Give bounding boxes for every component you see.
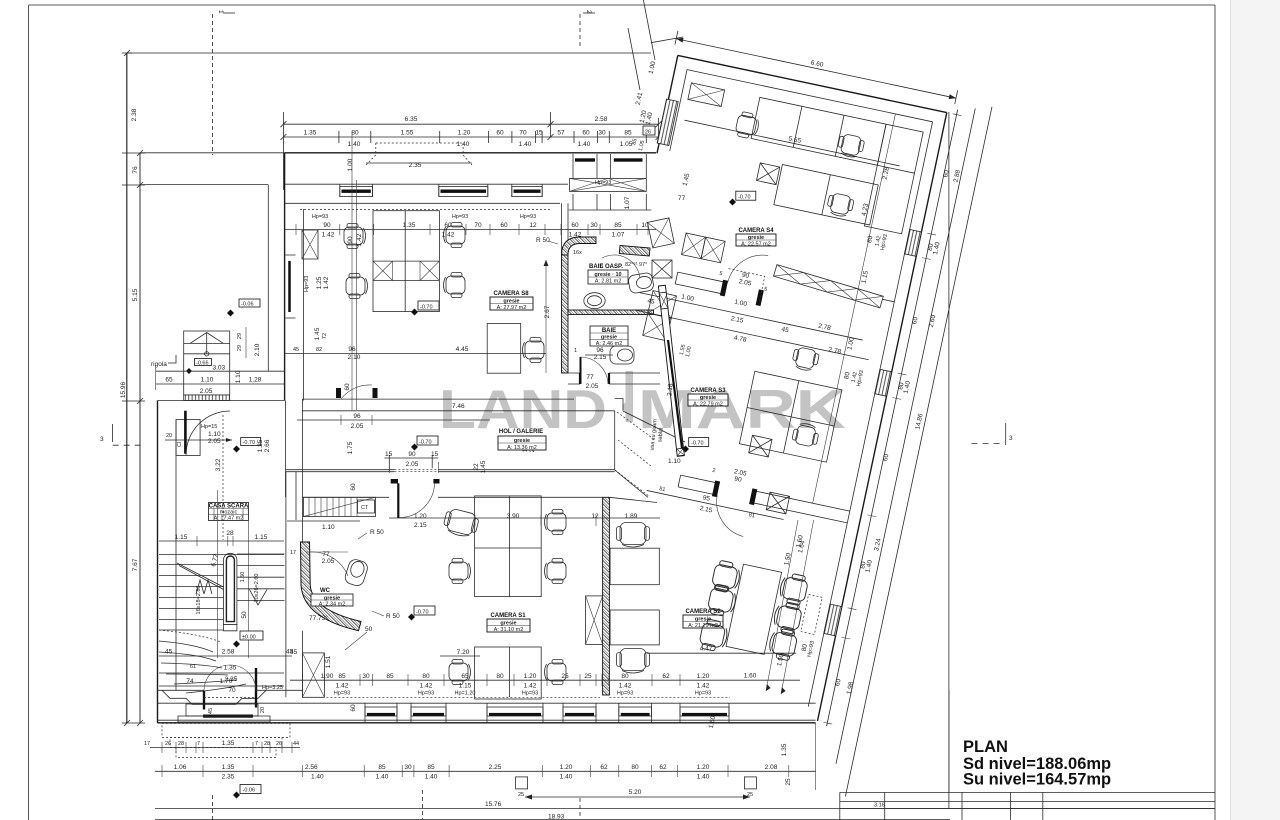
svg-text:Hp=93: Hp=93 <box>695 691 711 697</box>
svg-text:gresie: gresie <box>500 621 516 627</box>
svg-text:77: 77 <box>322 551 330 558</box>
svg-text:1.42: 1.42 <box>356 233 363 246</box>
svg-text:1.07: 1.07 <box>624 196 631 209</box>
svg-text:A: 22.79 m2: A: 22.79 m2 <box>693 401 723 407</box>
svg-text:45: 45 <box>208 708 214 714</box>
svg-text:96: 96 <box>353 413 361 420</box>
svg-text:3.16: 3.16 <box>874 803 885 809</box>
svg-text:1.51: 1.51 <box>325 655 332 668</box>
svg-text:22: 22 <box>473 463 480 471</box>
svg-text:Hp=93: Hp=93 <box>334 691 350 697</box>
svg-text:Hp=1.20: Hp=1.20 <box>455 691 476 697</box>
svg-text:1.10: 1.10 <box>201 377 214 384</box>
svg-text:85: 85 <box>427 764 435 771</box>
svg-text:3: 3 <box>1009 435 1013 442</box>
svg-text:1.35: 1.35 <box>304 130 317 137</box>
svg-text:-0.06: -0.06 <box>243 788 256 794</box>
svg-text:10x26=2.60: 10x26=2.60 <box>254 574 260 603</box>
svg-text:1.06: 1.06 <box>174 764 187 771</box>
svg-text:R 50: R 50 <box>536 237 550 244</box>
svg-text:25: 25 <box>785 778 792 786</box>
svg-text:A: 2.34 m2: A: 2.34 m2 <box>319 601 346 607</box>
svg-text:1.45: 1.45 <box>480 460 487 473</box>
svg-text:2.35: 2.35 <box>222 774 235 781</box>
svg-text:1.20: 1.20 <box>560 764 573 771</box>
svg-text:70: 70 <box>228 687 236 694</box>
svg-text:1.89: 1.89 <box>625 513 638 520</box>
svg-text:BAIE: BAIE <box>602 328 616 334</box>
svg-text:2.18: 2.18 <box>666 383 674 397</box>
svg-text:1.40: 1.40 <box>519 141 532 148</box>
svg-text:Su nivel=164.57mp: Su nivel=164.57mp <box>963 771 1111 789</box>
svg-text:20: 20 <box>260 707 266 713</box>
svg-text:2.10: 2.10 <box>348 354 361 361</box>
svg-text:26: 26 <box>276 741 282 747</box>
svg-text:2.10: 2.10 <box>254 343 261 356</box>
svg-text:-0.70: -0.70 <box>419 440 432 446</box>
svg-text:1.10: 1.10 <box>235 370 242 383</box>
svg-text:-0.70: -0.70 <box>416 610 429 616</box>
svg-text:CT: CT <box>361 505 369 511</box>
svg-text:90: 90 <box>323 222 331 229</box>
svg-text:Hp=93: Hp=93 <box>452 214 468 220</box>
svg-text:A: 31.10 m2: A: 31.10 m2 <box>494 627 524 633</box>
svg-text:1.25: 1.25 <box>257 439 264 452</box>
svg-text:25: 25 <box>584 673 592 680</box>
svg-text:30: 30 <box>598 130 606 137</box>
svg-text:1.15: 1.15 <box>459 683 472 690</box>
svg-text:57: 57 <box>557 130 565 137</box>
svg-text:±0.00: ±0.00 <box>242 635 256 641</box>
svg-text:45: 45 <box>165 649 173 656</box>
svg-text:85: 85 <box>631 138 638 145</box>
svg-text:BAIE OASP.: BAIE OASP. <box>589 264 623 270</box>
svg-text:1.40: 1.40 <box>560 774 573 781</box>
svg-text:76: 76 <box>132 166 139 174</box>
svg-text:17: 17 <box>144 741 150 747</box>
svg-text:rigola: rigola <box>151 361 167 368</box>
svg-text:60: 60 <box>500 222 508 229</box>
svg-text:77.73°: 77.73° <box>309 614 328 622</box>
svg-text:3.22: 3.22 <box>215 458 222 471</box>
svg-text:62: 62 <box>662 673 670 680</box>
svg-text:1.35: 1.35 <box>222 740 235 747</box>
svg-text:1.55: 1.55 <box>401 130 414 137</box>
svg-text:62: 62 <box>659 764 667 771</box>
svg-text:16x18=2.88: 16x18=2.88 <box>196 586 202 615</box>
svg-text:82°⁵¹ 97°: 82°⁵¹ 97° <box>625 261 647 268</box>
svg-text:18.93: 18.93 <box>548 814 565 820</box>
svg-text:-0.06: -0.06 <box>241 302 254 308</box>
svg-text:77: 77 <box>678 195 686 202</box>
svg-text:6: 6 <box>600 264 603 270</box>
svg-text:1.40: 1.40 <box>697 774 710 781</box>
svg-text:PLAN: PLAN <box>963 738 1008 756</box>
svg-text:-0.66: -0.66 <box>196 360 209 366</box>
svg-text:85: 85 <box>386 673 394 680</box>
svg-text:45: 45 <box>293 347 299 353</box>
svg-text:80: 80 <box>631 764 639 771</box>
svg-text:1.10: 1.10 <box>668 458 681 465</box>
svg-text:1.15: 1.15 <box>255 534 268 541</box>
svg-text:2.58: 2.58 <box>595 116 608 123</box>
svg-text:85: 85 <box>338 673 346 680</box>
svg-text:70: 70 <box>519 130 527 137</box>
svg-text:1.42: 1.42 <box>420 683 433 690</box>
svg-text:4.45: 4.45 <box>456 346 469 353</box>
svg-text:2.05: 2.05 <box>208 438 221 445</box>
svg-text:60: 60 <box>571 222 579 229</box>
svg-text:2.05: 2.05 <box>586 383 599 390</box>
svg-text:60: 60 <box>350 483 357 491</box>
svg-text:2.05: 2.05 <box>200 388 213 395</box>
svg-text:26: 26 <box>645 129 651 135</box>
svg-text:45: 45 <box>290 649 298 656</box>
svg-text:65: 65 <box>165 377 173 384</box>
svg-text:3.03: 3.03 <box>212 365 225 372</box>
svg-text:1.40: 1.40 <box>376 774 389 781</box>
svg-text:61: 61 <box>190 664 196 670</box>
svg-text:2.05: 2.05 <box>406 461 419 468</box>
svg-text:1.20: 1.20 <box>697 764 710 771</box>
svg-text:44: 44 <box>293 741 299 747</box>
svg-text:15.76: 15.76 <box>485 801 502 808</box>
svg-text:-0.70: -0.70 <box>738 194 751 200</box>
svg-text:2.35: 2.35 <box>225 676 238 683</box>
svg-text:60: 60 <box>350 704 357 712</box>
svg-text:80: 80 <box>621 673 629 680</box>
svg-text:CAMERA S4: CAMERA S4 <box>738 228 774 234</box>
svg-text:1.90: 1.90 <box>321 673 334 680</box>
svg-text:1.35: 1.35 <box>222 764 235 771</box>
svg-text:1.10: 1.10 <box>322 524 335 531</box>
svg-text:2.56: 2.56 <box>305 764 318 771</box>
svg-text:1.40: 1.40 <box>311 774 324 781</box>
svg-text:20: 20 <box>166 433 172 439</box>
svg-text:30: 30 <box>590 222 598 229</box>
svg-text:2.05: 2.05 <box>322 558 335 565</box>
svg-text:1.45: 1.45 <box>314 327 321 340</box>
svg-text:50: 50 <box>241 611 248 619</box>
svg-text:96: 96 <box>596 347 604 354</box>
svg-text:72: 72 <box>322 333 328 339</box>
svg-text:1.20: 1.20 <box>524 673 537 680</box>
svg-text:2.58: 2.58 <box>222 649 235 656</box>
svg-text:6.35: 6.35 <box>405 116 418 123</box>
svg-text:7.67: 7.67 <box>132 558 139 571</box>
svg-text:2.08: 2.08 <box>765 764 778 771</box>
svg-text:5.20: 5.20 <box>629 789 642 796</box>
svg-text:gresie: gresie <box>700 395 716 401</box>
svg-text:A: 27.97 m2: A: 27.97 m2 <box>497 305 527 311</box>
svg-text:CAMERA S3: CAMERA S3 <box>690 388 726 394</box>
svg-text:1.40: 1.40 <box>425 774 438 781</box>
svg-text:81: 81 <box>659 486 666 493</box>
svg-text:50: 50 <box>365 626 373 633</box>
svg-text:1.42: 1.42 <box>524 683 537 690</box>
svg-text:CI: CI <box>177 441 183 447</box>
svg-text:1.20: 1.20 <box>414 513 427 520</box>
svg-text:90: 90 <box>408 451 416 458</box>
svg-text:R 50: R 50 <box>386 613 400 620</box>
svg-text:1.50: 1.50 <box>240 572 246 583</box>
svg-text:1.07: 1.07 <box>612 232 625 239</box>
svg-text:26: 26 <box>165 741 171 747</box>
svg-text:90: 90 <box>347 236 354 244</box>
svg-text:77: 77 <box>586 374 594 381</box>
svg-text:80: 80 <box>351 130 359 137</box>
svg-text:15.96: 15.96 <box>120 381 127 398</box>
svg-text:1.42: 1.42 <box>619 683 632 690</box>
svg-text:74: 74 <box>186 678 194 685</box>
svg-text:28: 28 <box>264 741 270 747</box>
svg-text:R 50: R 50 <box>370 529 384 536</box>
svg-text:2.15: 2.15 <box>414 522 427 529</box>
svg-text:80: 80 <box>422 673 430 680</box>
svg-text:85: 85 <box>378 764 386 771</box>
svg-text:82: 82 <box>316 347 322 353</box>
svg-text:1.42: 1.42 <box>697 683 710 690</box>
svg-text:1.42: 1.42 <box>569 232 582 239</box>
svg-text:1.60: 1.60 <box>744 673 757 680</box>
svg-text:HOL / GALERIE: HOL / GALERIE <box>499 429 543 435</box>
svg-text:28: 28 <box>226 530 234 537</box>
svg-text:-0.70: -0.70 <box>691 441 704 447</box>
svg-text:CAMERA S1: CAMERA S1 <box>490 613 526 619</box>
svg-text:2.67: 2.67 <box>544 305 551 318</box>
svg-text:25: 25 <box>518 792 524 798</box>
svg-text:1.10: 1.10 <box>208 431 221 438</box>
svg-text:15: 15 <box>385 451 393 458</box>
svg-text:1.42: 1.42 <box>336 683 349 690</box>
svg-text:1.75: 1.75 <box>347 441 354 454</box>
svg-text:Hp=93: Hp=93 <box>595 180 611 186</box>
svg-text:Hp=93: Hp=93 <box>520 214 536 220</box>
svg-text:85: 85 <box>614 222 622 229</box>
svg-text:Hp=93: Hp=93 <box>418 691 434 697</box>
svg-text:7.46: 7.46 <box>452 403 465 410</box>
svg-text:2.38: 2.38 <box>131 108 138 121</box>
svg-text:15: 15 <box>431 451 439 458</box>
svg-text:12: 12 <box>529 222 537 229</box>
svg-text:Hp=93: Hp=93 <box>304 276 310 292</box>
svg-text:A: 2.81 m2: A: 2.81 m2 <box>595 279 622 285</box>
svg-text:3.90: 3.90 <box>507 513 520 520</box>
svg-text:1.40: 1.40 <box>348 141 361 148</box>
svg-text:2.66: 2.66 <box>264 439 271 452</box>
svg-text:1.28: 1.28 <box>249 377 262 384</box>
svg-text:gresie: gresie <box>514 438 530 444</box>
svg-text:17: 17 <box>290 550 296 556</box>
svg-text:WC: WC <box>320 588 331 594</box>
svg-text:1.42: 1.42 <box>322 232 335 239</box>
svg-text:12: 12 <box>591 513 599 520</box>
svg-text:CAMERA S8: CAMERA S8 <box>493 291 529 297</box>
svg-text:1.40: 1.40 <box>578 141 591 148</box>
svg-text:A: 22.57 m2: A: 22.57 m2 <box>741 241 771 247</box>
svg-text:gresie · 10: gresie · 10 <box>594 272 621 278</box>
svg-text:60: 60 <box>582 130 590 137</box>
svg-text:1.42: 1.42 <box>442 232 455 239</box>
svg-text:A: 13.36 m2: A: 13.36 m2 <box>507 445 537 451</box>
svg-text:1.20: 1.20 <box>697 673 710 680</box>
svg-text:1.35: 1.35 <box>403 222 416 229</box>
svg-text:5.15: 5.15 <box>132 288 139 301</box>
svg-text:1.42: 1.42 <box>323 276 330 289</box>
svg-text:Hp=15: Hp=15 <box>201 424 217 430</box>
svg-text:1.00: 1.00 <box>347 158 354 171</box>
svg-text:60: 60 <box>344 383 351 391</box>
svg-text:Hp=93: Hp=93 <box>522 691 538 697</box>
svg-text:28: 28 <box>178 741 184 747</box>
svg-text:A: 17.47 m2: A: 17.47 m2 <box>214 516 244 522</box>
svg-text:60: 60 <box>496 130 504 137</box>
svg-text:70: 70 <box>474 222 482 229</box>
svg-text:gresie: gresie <box>503 299 519 305</box>
svg-text:29: 29 <box>237 345 243 351</box>
svg-text:30: 30 <box>404 764 412 771</box>
svg-text:1.20: 1.20 <box>458 130 471 137</box>
svg-text:7: 7 <box>255 741 258 747</box>
svg-text:2: 2 <box>585 10 592 14</box>
svg-text:2.05: 2.05 <box>351 423 364 430</box>
svg-text:1.15: 1.15 <box>175 534 188 541</box>
svg-text:-0.70: -0.70 <box>420 305 433 311</box>
svg-text:2.25: 2.25 <box>489 764 502 771</box>
svg-text:1.25: 1.25 <box>316 276 323 289</box>
svg-text:29: 29 <box>237 333 243 339</box>
svg-text:62: 62 <box>600 764 608 771</box>
svg-text:gresie: gresie <box>601 335 617 341</box>
svg-text:Hp=93: Hp=93 <box>312 214 328 220</box>
svg-text:16x: 16x <box>573 250 582 256</box>
svg-text:7: 7 <box>197 741 200 747</box>
svg-text:3: 3 <box>100 436 104 443</box>
svg-text:7.20: 7.20 <box>457 649 470 656</box>
svg-text:1.35: 1.35 <box>781 743 788 756</box>
svg-text:81: 81 <box>748 512 755 519</box>
svg-text:Hp=93: Hp=93 <box>617 691 633 697</box>
svg-text:30: 30 <box>362 673 370 680</box>
svg-text:80: 80 <box>496 673 504 680</box>
svg-text:-0.70: -0.70 <box>243 440 256 446</box>
svg-text:1: 1 <box>574 348 577 354</box>
svg-text:gresie: gresie <box>748 235 764 241</box>
svg-text:1: 1 <box>217 10 224 14</box>
svg-text:60: 60 <box>444 222 452 229</box>
svg-text:15: 15 <box>535 130 543 137</box>
svg-text:85: 85 <box>624 130 632 137</box>
